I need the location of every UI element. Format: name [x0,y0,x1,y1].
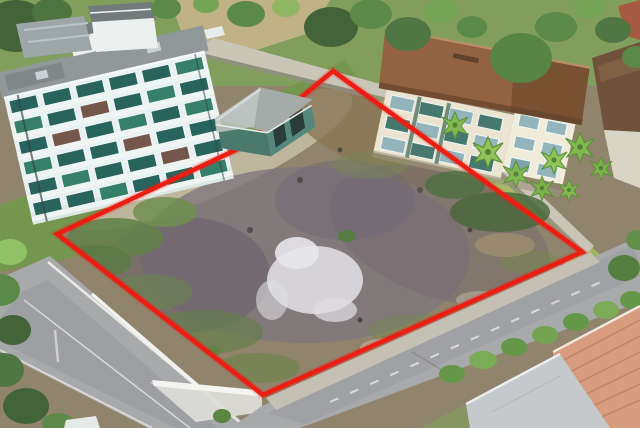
haze-overlay [0,0,640,428]
scene-canvas [0,0,640,428]
aerial-photo [0,0,640,428]
